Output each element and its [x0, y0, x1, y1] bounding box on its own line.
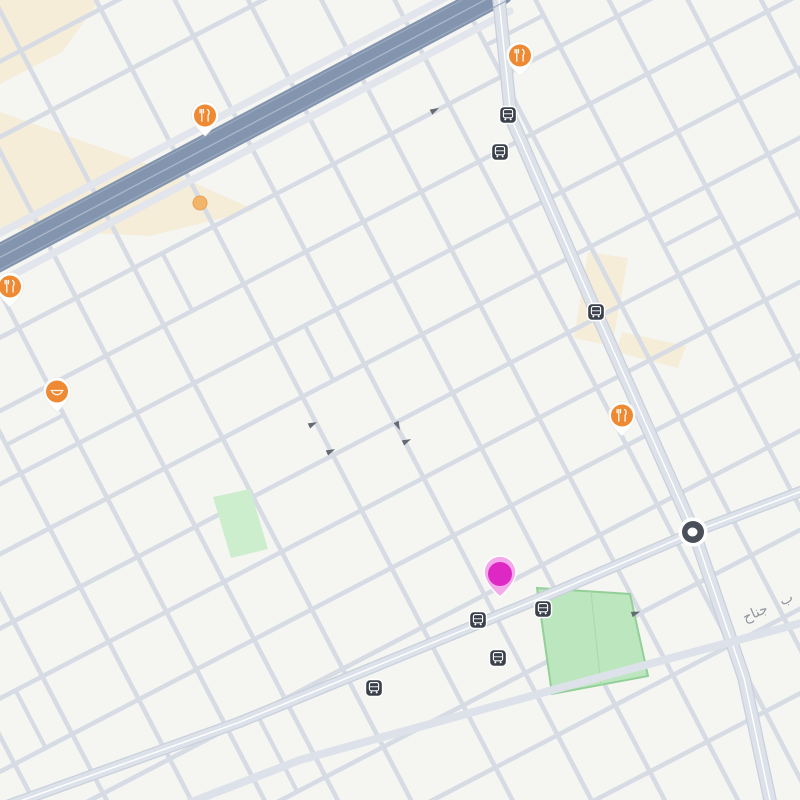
bus-wheel	[474, 623, 476, 625]
bus-stop-icon[interactable]	[492, 144, 509, 161]
pin-circle	[611, 405, 633, 427]
bus-wheel	[598, 315, 600, 317]
bus-wheel	[500, 661, 502, 663]
pin-circle	[46, 381, 68, 403]
map-background	[0, 0, 800, 800]
bus-wheel	[592, 315, 594, 317]
bus-stop-icon[interactable]	[535, 601, 552, 618]
bus-stop-icon[interactable]	[366, 680, 383, 697]
bus-icon-bg	[490, 650, 507, 667]
bus-wheel	[510, 118, 512, 120]
pin-circle	[0, 276, 21, 298]
bus-wheel	[545, 612, 547, 614]
small-poi-dot	[193, 196, 207, 210]
bus-icon-bg	[535, 601, 552, 618]
bus-wheel	[376, 691, 378, 693]
map-canvas[interactable]: جناحب	[0, 0, 800, 800]
map-view[interactable]: جناحب	[0, 0, 800, 800]
poi-orange-dot[interactable]	[193, 196, 207, 210]
bus-wheel	[494, 661, 496, 663]
transit-center	[688, 528, 698, 537]
bus-icon-bg	[588, 304, 605, 321]
selected-pin-dot	[488, 562, 512, 586]
bus-wheel	[539, 612, 541, 614]
bus-icon-bg	[366, 680, 383, 697]
bus-stop-icon[interactable]	[500, 107, 517, 124]
bus-stop-icon[interactable]	[588, 304, 605, 321]
bus-wheel	[504, 118, 506, 120]
bus-wheel	[496, 155, 498, 157]
pin-circle	[194, 105, 216, 127]
bus-stop-icon[interactable]	[470, 612, 487, 629]
pin-circle	[509, 45, 531, 67]
bus-wheel	[480, 623, 482, 625]
bus-wheel	[370, 691, 372, 693]
bus-wheel	[502, 155, 504, 157]
transit-circle-icon[interactable]	[679, 518, 708, 547]
bus-stop-icon[interactable]	[490, 650, 507, 667]
bus-icon-bg	[470, 612, 487, 629]
